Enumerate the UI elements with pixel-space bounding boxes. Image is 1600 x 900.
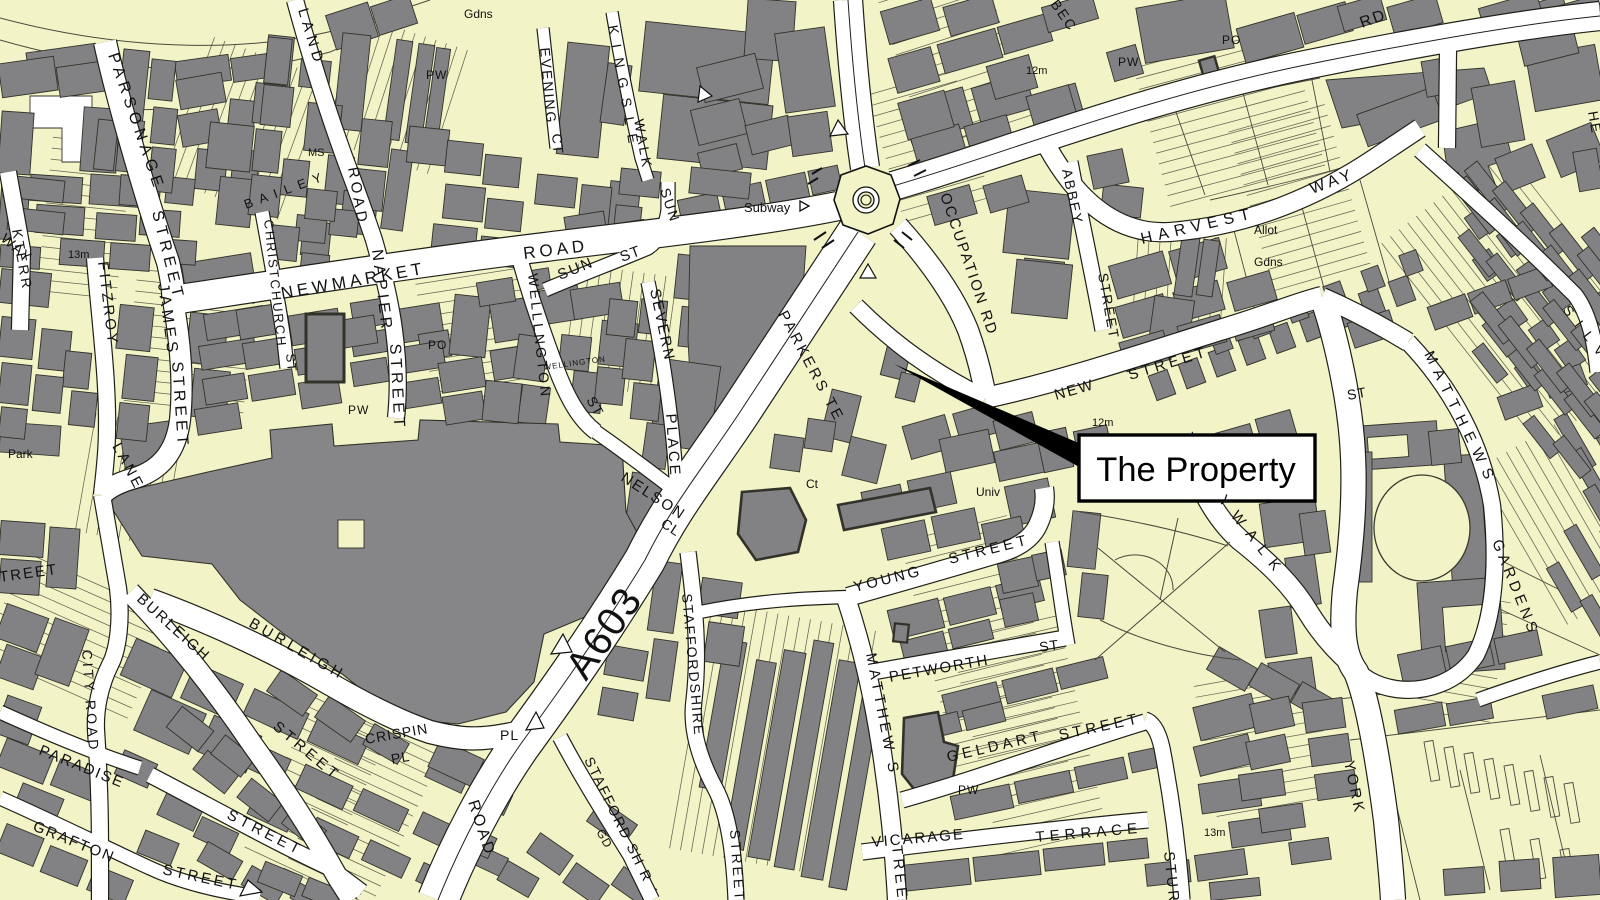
svg-text:Univ: Univ <box>976 485 1000 499</box>
svg-text:Gdns: Gdns <box>1254 255 1283 269</box>
svg-text:PL: PL <box>390 748 412 767</box>
svg-text:13m: 13m <box>1204 827 1225 839</box>
svg-text:Allot: Allot <box>1254 223 1278 237</box>
svg-text:PL: PL <box>500 727 519 743</box>
svg-text:MS: MS <box>308 147 325 159</box>
svg-text:12m: 12m <box>1092 417 1113 429</box>
svg-text:ST: ST <box>283 353 300 373</box>
svg-text:13m: 13m <box>68 249 89 261</box>
svg-text:Park: Park <box>8 447 34 461</box>
svg-text:Subway: Subway <box>744 200 791 215</box>
svg-text:PW: PW <box>426 68 447 82</box>
svg-text:PW: PW <box>1118 55 1139 69</box>
svg-text:CT: CT <box>549 133 567 155</box>
svg-text:PO: PO <box>428 338 447 352</box>
svg-text:12m: 12m <box>1026 65 1047 77</box>
svg-text:The Property: The Property <box>1096 451 1296 489</box>
svg-text:Ct: Ct <box>806 477 819 491</box>
svg-text:PO: PO <box>1222 33 1241 47</box>
svg-text:PW: PW <box>958 783 979 797</box>
svg-text:ST: ST <box>1038 636 1060 655</box>
svg-text:PW: PW <box>348 403 369 417</box>
svg-text:Gdns: Gdns <box>464 7 493 21</box>
svg-text:ST: ST <box>1346 384 1368 403</box>
